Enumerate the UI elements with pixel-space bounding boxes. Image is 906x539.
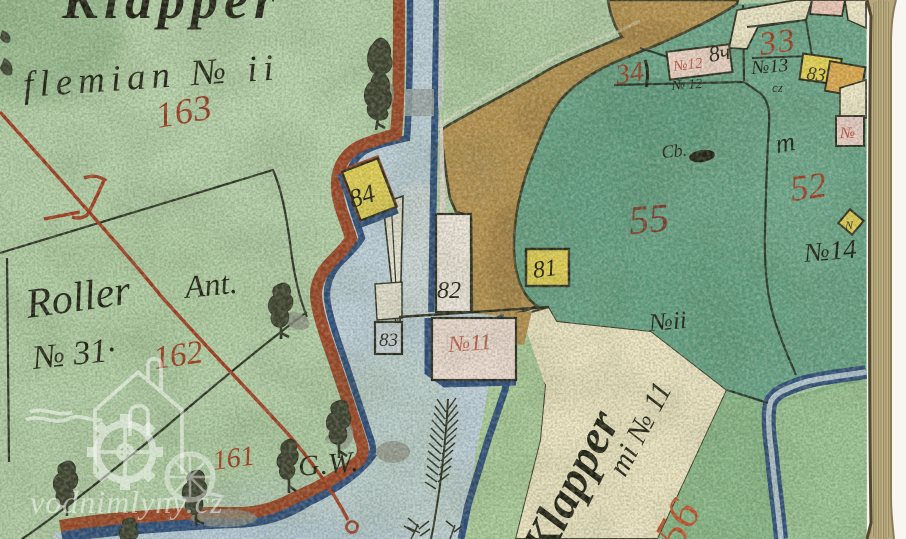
- svg-text:vodnimlyny.cz: vodnimlyny.cz: [30, 484, 223, 520]
